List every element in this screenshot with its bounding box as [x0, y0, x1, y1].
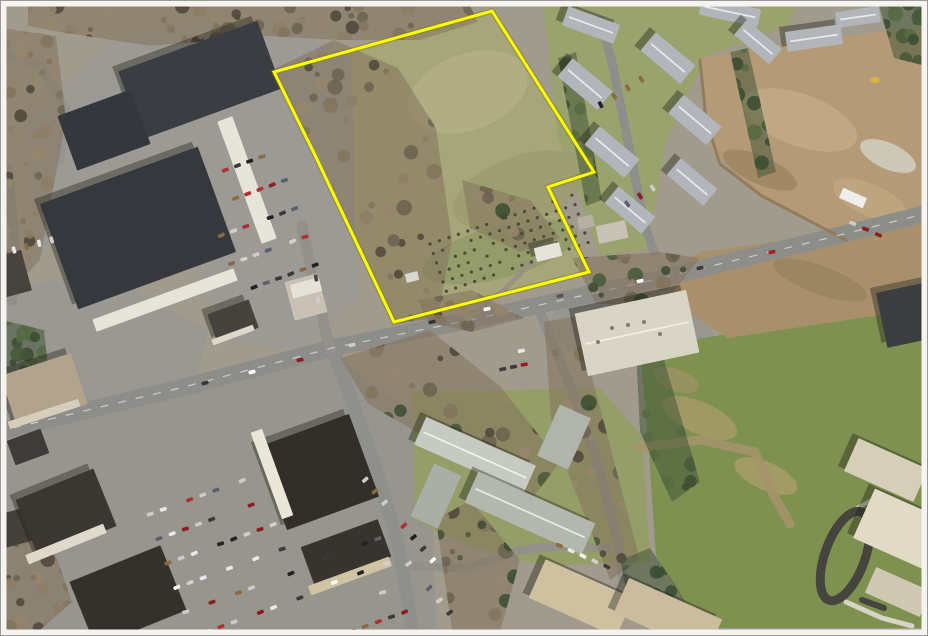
orchard-planting	[463, 252, 466, 255]
tree-canopy	[363, 226, 368, 231]
tree-canopy	[404, 145, 418, 159]
orchard-planting	[552, 232, 555, 235]
orchard-planting	[469, 239, 472, 242]
tree-canopy	[367, 28, 373, 34]
orchard-planting	[428, 242, 431, 245]
tree-canopy	[330, 10, 341, 21]
tree-canopy	[661, 266, 670, 275]
orchard-planting	[520, 264, 523, 267]
tree-canopy	[375, 247, 386, 258]
tree-canopy	[574, 102, 587, 115]
orchard-planting	[470, 270, 473, 273]
orchard-planting	[485, 223, 488, 226]
tree-canopy	[408, 23, 414, 29]
orchard-planting	[432, 252, 435, 255]
tree-canopy	[231, 9, 241, 19]
orchard-planting	[457, 233, 460, 236]
orchard-planting	[447, 236, 450, 239]
orchard-planting	[445, 290, 448, 293]
tree-canopy	[359, 211, 372, 224]
orchard-planting	[479, 267, 482, 270]
orchard-planting	[564, 206, 567, 209]
orchard-planting	[507, 226, 510, 229]
tree-canopy	[36, 583, 48, 595]
orchard-planting	[577, 212, 580, 215]
tree-canopy	[315, 77, 329, 91]
orchard-planting	[583, 231, 586, 234]
tree-canopy	[16, 598, 24, 606]
tree-canopy	[396, 200, 412, 216]
tree-canopy	[346, 21, 359, 34]
orchard-planting	[523, 241, 526, 244]
tree-canopy	[104, 9, 113, 18]
orchard-planting	[457, 264, 460, 267]
aerial-photo	[0, 0, 928, 636]
tree-canopy	[495, 203, 510, 218]
tree-canopy	[756, 126, 762, 132]
orchard-planting	[539, 225, 542, 228]
orchard-planting	[466, 229, 469, 232]
orchard-planting	[501, 239, 504, 242]
tree-canopy	[31, 145, 47, 161]
tree-canopy	[368, 202, 375, 209]
tree-canopy	[485, 428, 495, 438]
tree-canopy	[14, 109, 27, 122]
orchard-planting	[498, 229, 501, 232]
tree-canopy	[8, 126, 14, 132]
orchard-planting	[568, 247, 571, 250]
tree-canopy	[589, 436, 594, 441]
tree-canopy	[754, 155, 768, 169]
orchard-planting	[573, 203, 576, 206]
tree-canopy	[394, 270, 403, 279]
tree-canopy	[409, 383, 415, 389]
roof-vent	[610, 326, 614, 330]
orchard-planting	[536, 216, 539, 219]
orchard-planting	[454, 255, 457, 258]
orchard-planting	[517, 254, 520, 257]
tree-canopy	[364, 82, 374, 92]
orchard-planting	[514, 245, 517, 248]
tree-canopy	[24, 162, 29, 167]
orchard-planting	[533, 238, 536, 241]
tree-canopy	[39, 70, 45, 76]
tree-canopy	[586, 467, 596, 477]
tree-canopy	[478, 521, 487, 530]
orchard-planting	[451, 277, 454, 280]
roof-vent	[642, 320, 646, 324]
tree-canopy	[308, 26, 314, 32]
tree-canopy	[642, 409, 651, 418]
tree-canopy	[30, 574, 36, 580]
roof-vent	[596, 340, 600, 344]
tree-canopy	[33, 131, 41, 139]
orchard-planting	[527, 251, 530, 254]
tree-canopy	[35, 172, 43, 180]
aerial-photo-viewport	[0, 0, 928, 636]
tree-canopy	[323, 98, 338, 113]
orchard-planting	[567, 216, 570, 219]
tree-canopy	[423, 287, 430, 294]
tree-canopy	[417, 233, 424, 240]
orchard-planting	[513, 213, 516, 216]
orchard-planting	[441, 280, 444, 283]
tree-canopy	[88, 27, 93, 32]
orchard-planting	[523, 210, 526, 213]
tree-canopy	[321, 18, 333, 30]
tree-canopy	[509, 195, 515, 201]
orchard-planting	[473, 248, 476, 251]
tree-canopy	[346, 95, 357, 106]
orchard-planting	[526, 219, 529, 222]
tree-canopy	[337, 149, 350, 162]
orchard-planting	[467, 261, 470, 264]
roof-vent	[658, 332, 662, 336]
tree-canopy	[382, 204, 395, 217]
tree-canopy	[14, 616, 30, 632]
tree-canopy	[422, 136, 428, 142]
tree-canopy	[315, 72, 320, 77]
orchard-planting	[571, 225, 574, 228]
orchard-planting	[542, 235, 545, 238]
orchard-planting	[530, 260, 533, 263]
orchard-planting	[517, 223, 520, 226]
orchard-planting	[498, 261, 501, 264]
tree-canopy	[167, 26, 175, 34]
tree-canopy	[30, 74, 42, 86]
tree-canopy	[342, 117, 348, 123]
tree-canopy	[588, 282, 598, 292]
tree-canopy	[599, 292, 604, 297]
tree-canopy	[32, 210, 38, 216]
tree-canopy	[684, 475, 696, 487]
tree-canopy	[495, 577, 505, 587]
orchard-planting	[454, 286, 457, 289]
tree-canopy	[519, 446, 531, 458]
tree-canopy	[630, 279, 636, 285]
tree-canopy	[426, 164, 441, 179]
orchard-planting	[473, 280, 476, 283]
orchard-planting	[482, 277, 485, 280]
tree-canopy	[46, 58, 52, 64]
tree-canopy	[309, 93, 317, 101]
orchard-planting	[548, 222, 551, 225]
tree-canopy	[503, 396, 510, 403]
tree-canopy	[414, 307, 420, 313]
orchard-planting	[564, 238, 567, 241]
tree-canopy	[643, 432, 653, 442]
tree-canopy	[488, 608, 501, 621]
orchard-planting	[520, 232, 523, 235]
tree-canopy	[443, 404, 458, 419]
tree-canopy	[292, 23, 303, 34]
tree-canopy	[16, 335, 24, 343]
orchard-planting	[529, 229, 532, 232]
orchard-planting	[488, 232, 491, 235]
tree-canopy	[41, 35, 54, 48]
orchard-planting	[448, 268, 451, 271]
orchard-planting	[485, 254, 488, 257]
orchard-planting	[492, 273, 495, 276]
tree-canopy	[457, 555, 463, 561]
orchard-planting	[504, 248, 507, 251]
tree-canopy	[41, 176, 55, 190]
tree-canopy	[161, 17, 167, 23]
orchard-planting	[545, 213, 548, 216]
orchard-planting	[464, 283, 467, 286]
tree-canopy	[437, 356, 443, 362]
tree-canopy	[348, 13, 354, 19]
tree-canopy	[20, 218, 26, 224]
tree-canopy	[365, 386, 378, 399]
tree-canopy	[10, 347, 25, 362]
tree-canopy	[478, 565, 484, 571]
orchard-planting	[511, 267, 514, 270]
ground-texture	[870, 77, 880, 83]
tree-canopy	[450, 549, 456, 555]
tree-canopy	[52, 603, 59, 610]
orchard-planting	[532, 207, 535, 210]
tree-canopy	[383, 69, 389, 75]
orchard-planting	[492, 242, 495, 245]
tree-canopy	[399, 173, 409, 183]
orchard-planting	[479, 236, 482, 239]
tree-canopy	[369, 60, 380, 71]
orchard-planting	[489, 264, 492, 267]
tree-canopy	[14, 47, 29, 62]
tree-canopy	[392, 366, 404, 378]
tree-canopy	[496, 427, 510, 441]
tree-canopy	[208, 11, 219, 22]
orchard-planting	[561, 228, 564, 231]
tree-canopy	[908, 34, 919, 45]
tree-canopy	[296, 101, 311, 116]
orchard-planting	[438, 271, 441, 274]
tree-canopy	[618, 501, 625, 508]
orchard-planting	[587, 241, 590, 244]
orchard-planting	[558, 219, 561, 222]
tree-canopy	[465, 532, 470, 537]
orchard-planting	[570, 194, 573, 197]
tree-canopy	[358, 21, 369, 32]
tree-canopy	[588, 405, 593, 410]
tree-canopy	[387, 234, 399, 246]
tree-canopy	[327, 80, 342, 95]
orchard-planting	[460, 274, 463, 277]
tree-canopy	[332, 68, 345, 81]
tree-canopy	[30, 332, 40, 342]
tree-canopy	[423, 382, 437, 396]
tree-canopy	[26, 85, 35, 94]
orchard-planting	[476, 226, 479, 229]
tree-canopy	[213, 23, 219, 29]
tree-canopy	[482, 192, 494, 204]
tree-canopy	[25, 229, 35, 239]
orchard-planting	[441, 249, 444, 252]
tree-canopy	[394, 404, 406, 416]
tree-canopy	[551, 350, 558, 357]
orchard-planting	[438, 239, 441, 242]
orchard-planting	[504, 216, 507, 219]
tree-canopy	[680, 266, 686, 272]
tree-canopy	[339, 193, 348, 202]
tree-canopy	[387, 274, 393, 280]
orchard-planting	[435, 261, 438, 264]
roof-vent	[626, 323, 630, 327]
